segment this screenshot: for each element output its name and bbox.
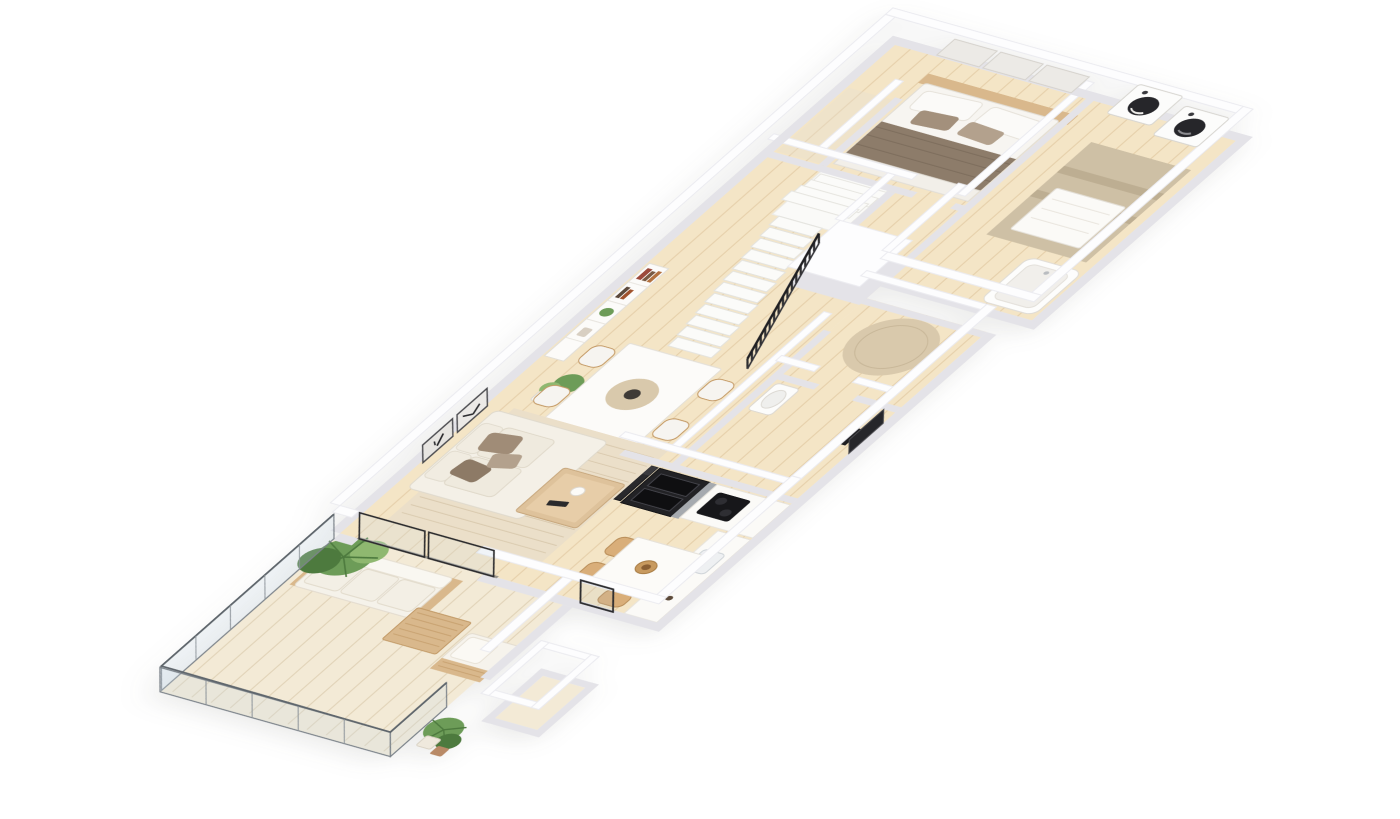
floorplan-svg xyxy=(0,0,1400,819)
wood-floors xyxy=(160,45,1236,788)
floorplan-canvas xyxy=(0,0,1400,819)
